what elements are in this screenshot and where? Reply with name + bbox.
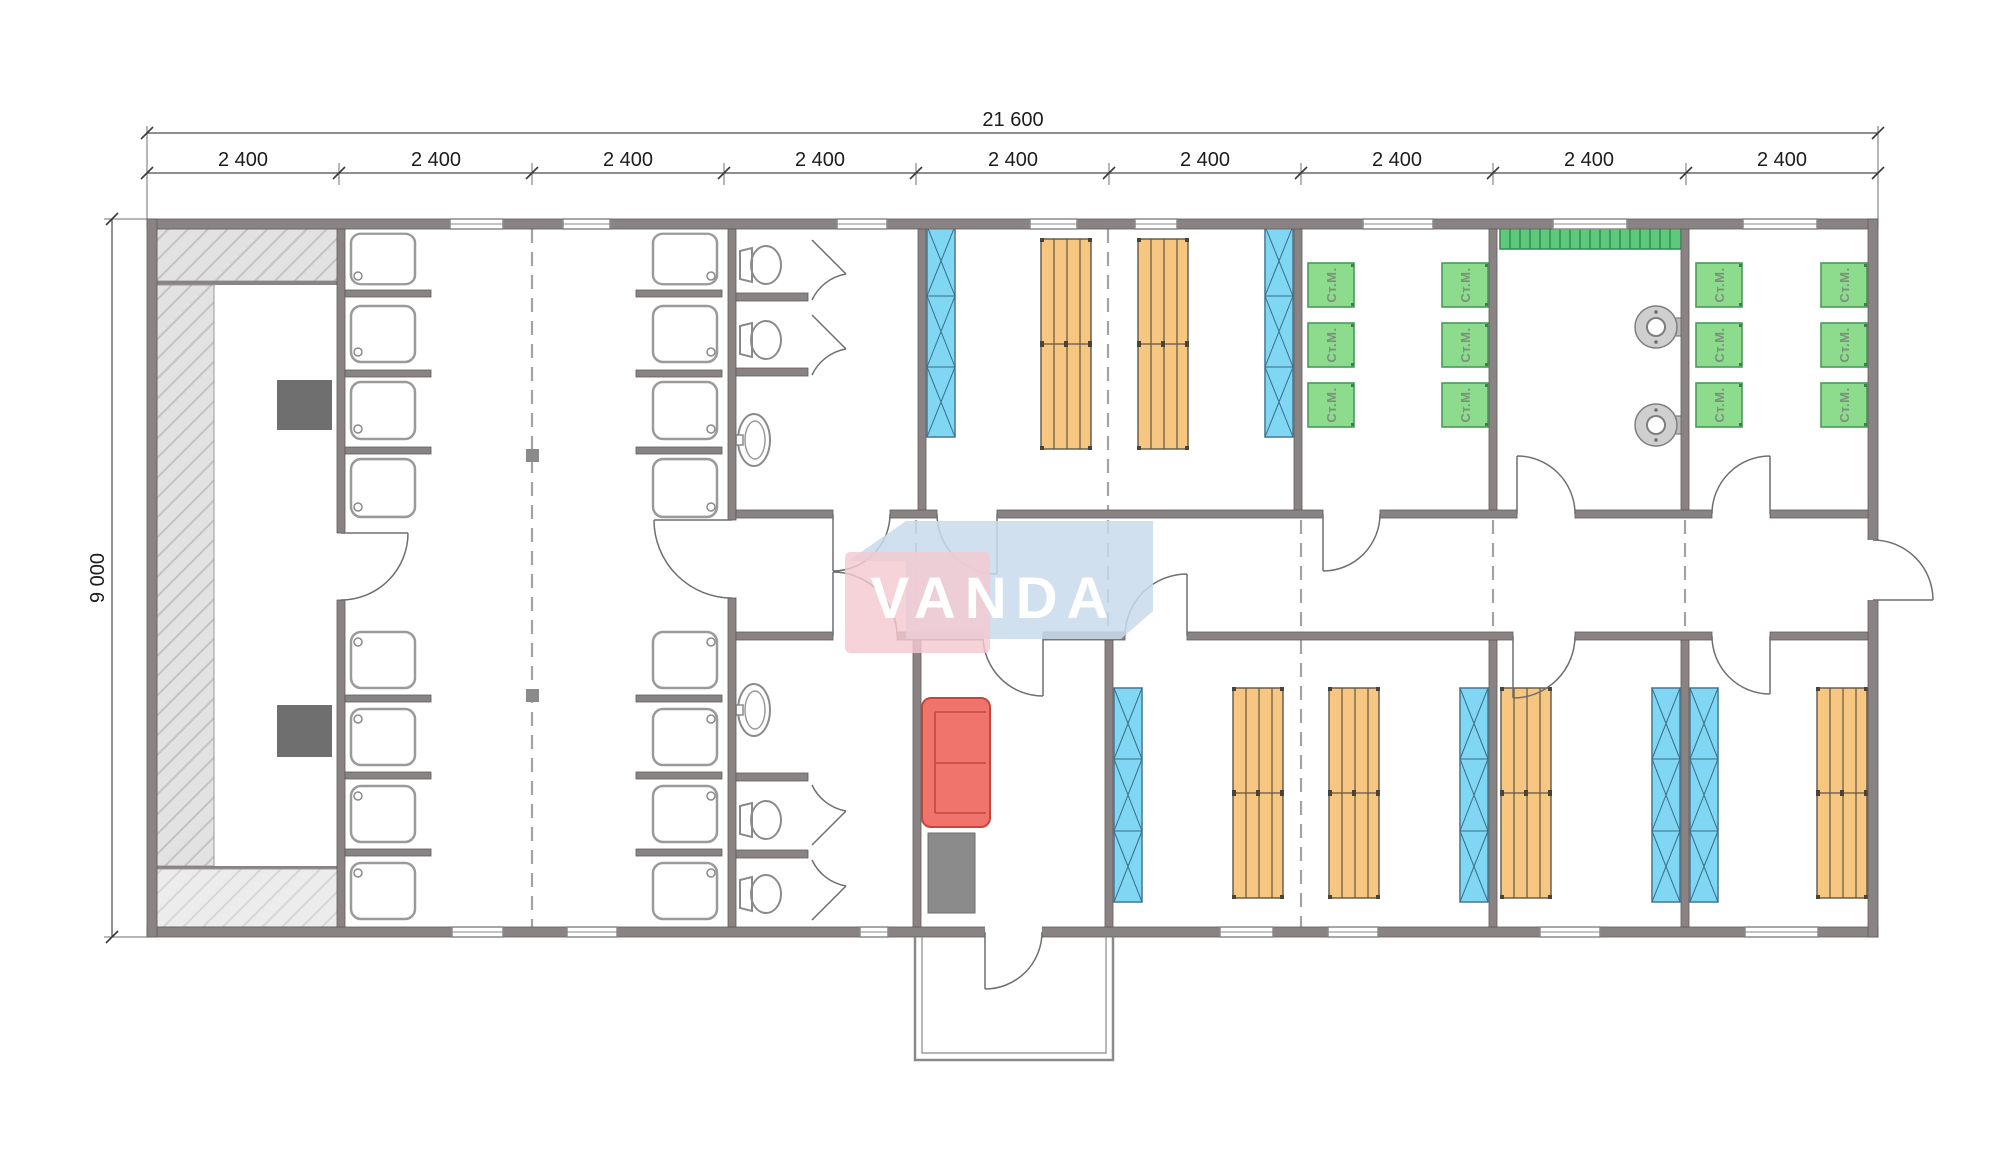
dimension-segment: 2 400 bbox=[218, 149, 268, 171]
window bbox=[452, 927, 503, 937]
shower-partition bbox=[345, 772, 431, 779]
window bbox=[1553, 219, 1627, 229]
corridor-wall bbox=[997, 510, 1323, 518]
wardrobe bbox=[1265, 226, 1293, 437]
bunk-bed bbox=[1816, 687, 1868, 899]
stall-wall bbox=[736, 773, 808, 781]
interior-wall bbox=[1489, 640, 1497, 927]
washing-machine-label: Ст.М. bbox=[1324, 267, 1339, 302]
window bbox=[1745, 927, 1818, 937]
entrance-opening bbox=[985, 926, 1042, 938]
stall-wall bbox=[736, 293, 808, 301]
shower-partition bbox=[345, 695, 431, 702]
sofa bbox=[922, 698, 990, 827]
window bbox=[1030, 219, 1077, 229]
interior-wall bbox=[337, 600, 345, 927]
dimension-segment: 2 400 bbox=[1564, 149, 1614, 171]
window bbox=[450, 219, 503, 229]
exterior-wall-left bbox=[147, 219, 157, 937]
dimension-segment: 2 400 bbox=[1180, 149, 1230, 171]
shower-partition bbox=[345, 370, 431, 377]
washing-machine-label: Ст.М. bbox=[1458, 327, 1473, 362]
window bbox=[860, 927, 888, 937]
washing-machine-label: Ст.М. bbox=[1837, 387, 1852, 422]
dimension-segment: 2 400 bbox=[1757, 149, 1807, 171]
dimension-segment: 2 400 bbox=[795, 149, 845, 171]
wardrobe bbox=[927, 226, 955, 437]
washing-machine-label: Ст.М. bbox=[1837, 327, 1852, 362]
interior-wall bbox=[1105, 640, 1113, 927]
interior-wall bbox=[1489, 229, 1497, 510]
dimension-segment: 2 400 bbox=[988, 149, 1038, 171]
toilet bbox=[740, 801, 781, 839]
corridor-wall bbox=[736, 510, 833, 518]
corridor-wall bbox=[1770, 510, 1868, 518]
shower-partition bbox=[636, 447, 722, 454]
washing-machine-label: Ст.М. bbox=[1712, 327, 1727, 362]
corridor-wall bbox=[736, 632, 833, 640]
exit-door bbox=[1873, 540, 1933, 600]
window bbox=[1363, 219, 1433, 229]
window bbox=[1135, 219, 1177, 229]
interior-wall bbox=[918, 229, 926, 510]
column-post bbox=[526, 689, 539, 702]
washing-machine-label: Ст.М. bbox=[1837, 267, 1852, 302]
shower-partition bbox=[636, 849, 722, 856]
entrance-door bbox=[985, 932, 1042, 989]
stall-wall bbox=[736, 850, 808, 858]
corridor-wall bbox=[1575, 632, 1712, 640]
interior-wall bbox=[1681, 229, 1689, 510]
washing-machine-label: Ст.М. bbox=[1458, 387, 1473, 422]
dimension-segment: 2 400 bbox=[603, 149, 653, 171]
interior-wall bbox=[337, 229, 345, 533]
toilet bbox=[740, 321, 781, 359]
entrance-porch bbox=[915, 937, 1113, 1060]
interior-wall bbox=[728, 229, 736, 520]
shower-partition bbox=[636, 772, 722, 779]
wardrobe bbox=[1690, 688, 1718, 902]
bunk-bed bbox=[1137, 238, 1189, 450]
window bbox=[1220, 927, 1273, 937]
washing-machine-label: Ст.М. bbox=[1324, 387, 1339, 422]
corridor-exit-opening bbox=[1867, 540, 1879, 600]
window bbox=[1743, 219, 1817, 229]
dimension-segment: 2 400 bbox=[1372, 149, 1422, 171]
table bbox=[277, 380, 332, 430]
bunk-bed bbox=[1328, 687, 1380, 899]
window bbox=[563, 219, 610, 229]
washing-machine-label: Ст.М. bbox=[1458, 267, 1473, 302]
column-post bbox=[526, 449, 539, 462]
washing-machine-label: Ст.М. bbox=[1324, 327, 1339, 362]
watermark-text: VANDA bbox=[871, 566, 1118, 631]
dimension-segment: 2 400 bbox=[411, 149, 461, 171]
shower-partition bbox=[636, 290, 722, 297]
floor-plan-page: Ст.М. Ст.М. Ст.М. Ст.М. Ст.М. Ст.М. Ст.М… bbox=[0, 0, 2000, 1173]
dimension-total-width: 21 600 bbox=[982, 109, 1043, 131]
shower-partition bbox=[345, 290, 431, 297]
corridor-wall bbox=[1187, 632, 1513, 640]
interior-wall bbox=[728, 598, 736, 927]
window bbox=[1328, 927, 1378, 937]
toilet bbox=[740, 246, 781, 284]
corridor-wall bbox=[1380, 510, 1517, 518]
bunk-bed bbox=[1500, 687, 1552, 899]
interior-wall bbox=[1294, 229, 1302, 510]
shower-partition bbox=[345, 447, 431, 454]
bunk-bed bbox=[1040, 238, 1092, 450]
washing-machine-label: Ст.М. bbox=[1712, 267, 1727, 302]
corridor-wall bbox=[890, 510, 937, 518]
toilet bbox=[740, 875, 781, 913]
corridor-wall bbox=[1575, 510, 1712, 518]
interior-wall bbox=[1681, 640, 1689, 927]
dimension-height: 9 000 bbox=[87, 553, 109, 603]
shower-partition bbox=[345, 849, 431, 856]
window bbox=[1540, 927, 1600, 937]
floor-plan-svg: Ст.М. Ст.М. Ст.М. Ст.М. Ст.М. Ст.М. Ст.М… bbox=[0, 0, 2000, 1173]
washing-machine-label: Ст.М. bbox=[1712, 387, 1727, 422]
window bbox=[567, 927, 617, 937]
table bbox=[277, 705, 332, 757]
bunk-bed bbox=[1232, 687, 1284, 899]
table bbox=[928, 833, 975, 913]
interior-wall bbox=[913, 640, 921, 927]
window bbox=[837, 219, 887, 229]
shower-partition bbox=[636, 695, 722, 702]
wardrobe bbox=[1652, 688, 1680, 902]
shower-partition bbox=[636, 370, 722, 377]
stall-wall bbox=[736, 368, 808, 376]
corridor-wall bbox=[1770, 632, 1868, 640]
vanda-watermark: VANDA bbox=[845, 521, 1153, 653]
wardrobe bbox=[1460, 688, 1488, 902]
wardrobe bbox=[1114, 688, 1142, 902]
